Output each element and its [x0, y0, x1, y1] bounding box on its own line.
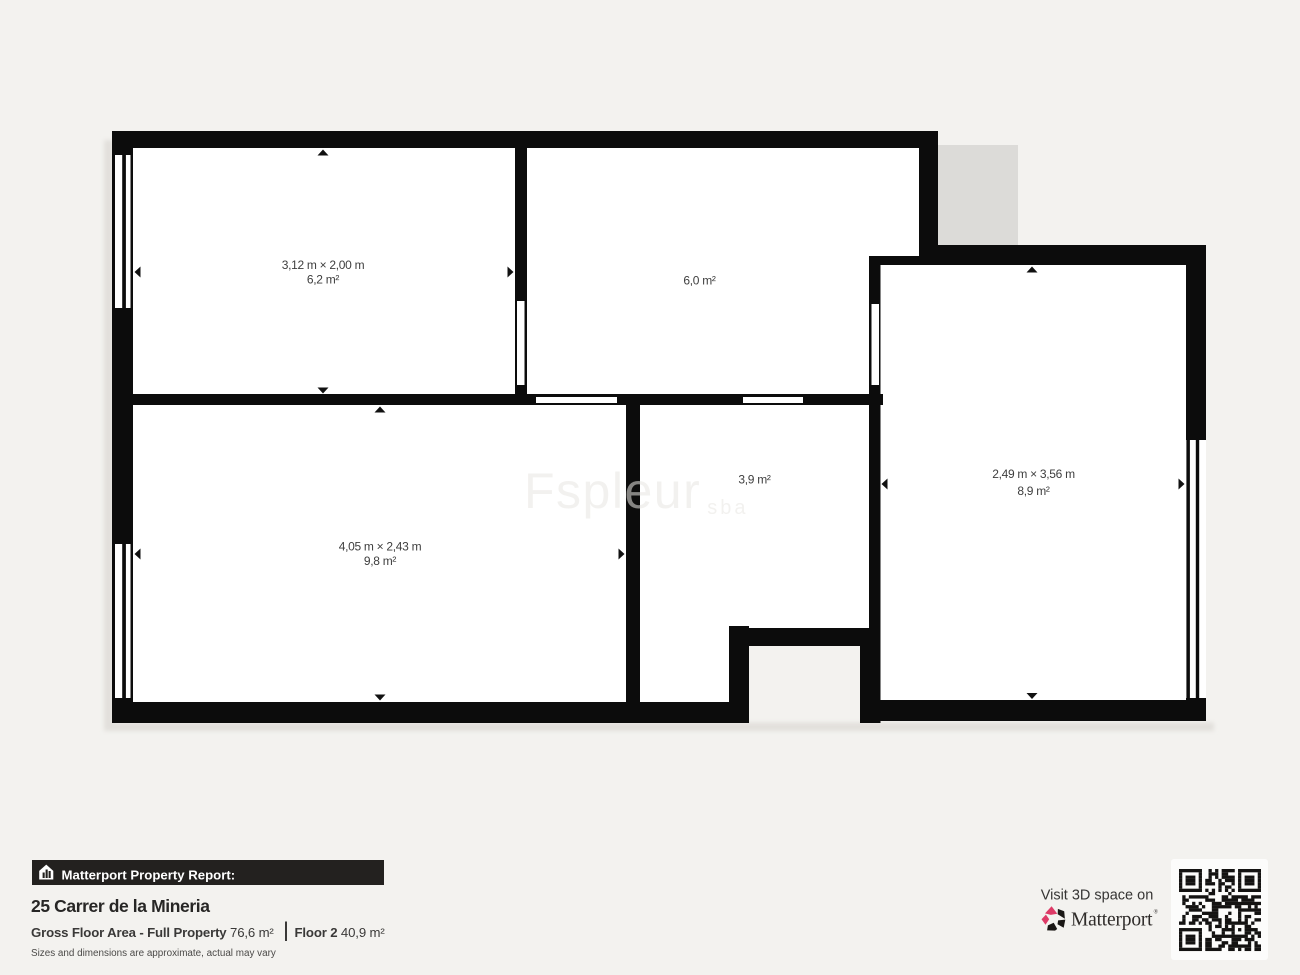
svg-text:Matterport Property Report:: Matterport Property Report:: [62, 868, 236, 883]
svg-text:6,0 m²: 6,0 m²: [683, 274, 716, 288]
svg-text:Gross Floor Area - Full Proper: Gross Floor Area - Full Property 76,6 m²: [31, 925, 274, 940]
svg-text:8,9 m²: 8,9 m²: [1017, 484, 1050, 498]
svg-text:9,8 m²: 9,8 m²: [364, 554, 397, 568]
svg-text:25 Carrer de la Mineria: 25 Carrer de la Mineria: [31, 896, 210, 916]
svg-text:3,12 m × 2,00 m: 3,12 m × 2,00 m: [282, 258, 365, 272]
svg-text:Sizes and dimensions are appro: Sizes and dimensions are approximate, ac…: [31, 948, 276, 959]
svg-text:4,05 m × 2,43 m: 4,05 m × 2,43 m: [339, 540, 422, 554]
svg-text:Floor 2 40,9 m²: Floor 2 40,9 m²: [295, 925, 386, 940]
svg-text:2,49 m × 3,56 m: 2,49 m × 3,56 m: [992, 467, 1075, 481]
svg-text:®: ®: [1154, 909, 1159, 916]
svg-text:Matterport: Matterport: [1071, 910, 1153, 931]
svg-text:Visit 3D space on: Visit 3D space on: [1041, 888, 1154, 904]
svg-text:6,2 m²: 6,2 m²: [307, 273, 340, 287]
svg-text:3,9 m²: 3,9 m²: [738, 473, 771, 487]
